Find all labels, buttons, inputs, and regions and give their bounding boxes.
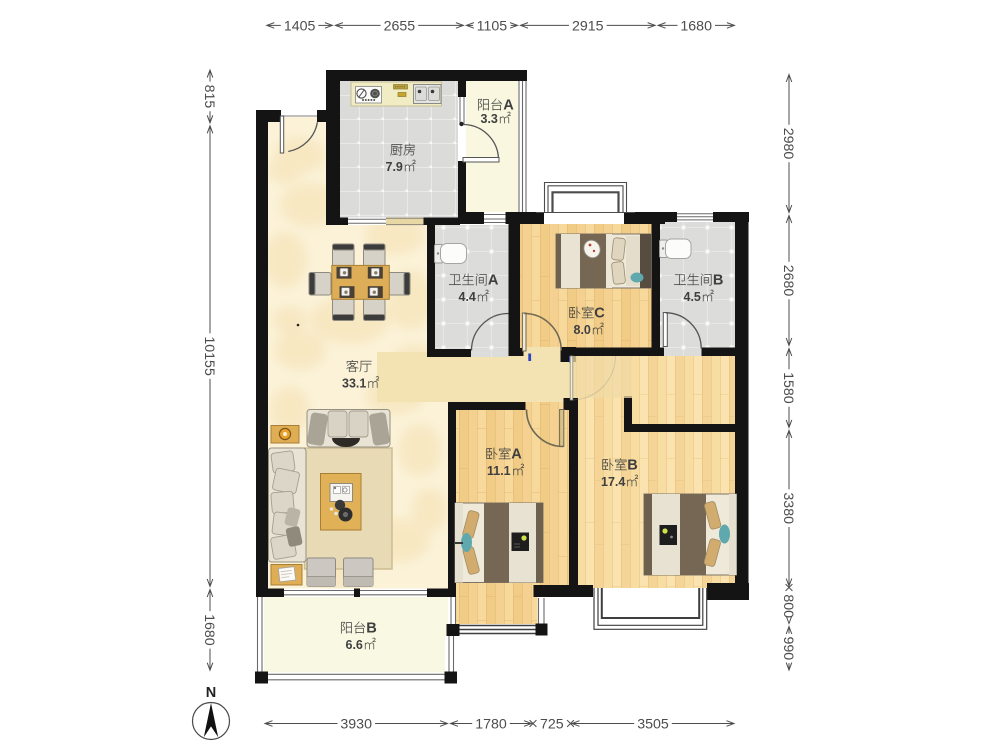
- svg-text:A: A: [511, 447, 522, 463]
- svg-text:3.3: 3.3: [481, 112, 498, 126]
- svg-text:2655: 2655: [384, 18, 416, 34]
- svg-text:725: 725: [540, 717, 564, 733]
- svg-text:1105: 1105: [477, 18, 508, 34]
- svg-text:1405: 1405: [284, 18, 316, 34]
- svg-text:8.0: 8.0: [574, 323, 591, 337]
- svg-text:4.5: 4.5: [684, 290, 701, 304]
- svg-text:3380: 3380: [780, 492, 796, 524]
- svg-text:1780: 1780: [475, 717, 507, 733]
- svg-text:3505: 3505: [637, 717, 669, 733]
- svg-text:17.4: 17.4: [601, 475, 625, 489]
- svg-text:33.1: 33.1: [342, 377, 366, 391]
- svg-text:6.6: 6.6: [346, 638, 363, 652]
- svg-text:B: B: [713, 273, 724, 289]
- svg-text:3930: 3930: [340, 717, 372, 733]
- svg-text:2980: 2980: [780, 128, 796, 160]
- svg-text:2915: 2915: [572, 18, 604, 34]
- svg-text:1580: 1580: [780, 372, 796, 404]
- svg-text:A: A: [503, 98, 514, 114]
- svg-text:B: B: [366, 621, 377, 637]
- svg-text:800: 800: [780, 594, 796, 618]
- svg-text:A: A: [488, 273, 499, 289]
- svg-text:815: 815: [201, 85, 217, 109]
- svg-text:11.1: 11.1: [487, 464, 511, 478]
- svg-text:1680: 1680: [680, 18, 712, 34]
- svg-text:7.9: 7.9: [386, 160, 403, 174]
- svg-text:C: C: [594, 306, 605, 322]
- svg-text:N: N: [206, 685, 216, 701]
- svg-text:4.4: 4.4: [459, 290, 476, 304]
- svg-text:B: B: [627, 458, 638, 474]
- svg-text:10155: 10155: [201, 336, 217, 376]
- svg-text:1680: 1680: [201, 614, 217, 646]
- svg-text:2680: 2680: [780, 265, 796, 297]
- svg-text:990: 990: [780, 636, 796, 660]
